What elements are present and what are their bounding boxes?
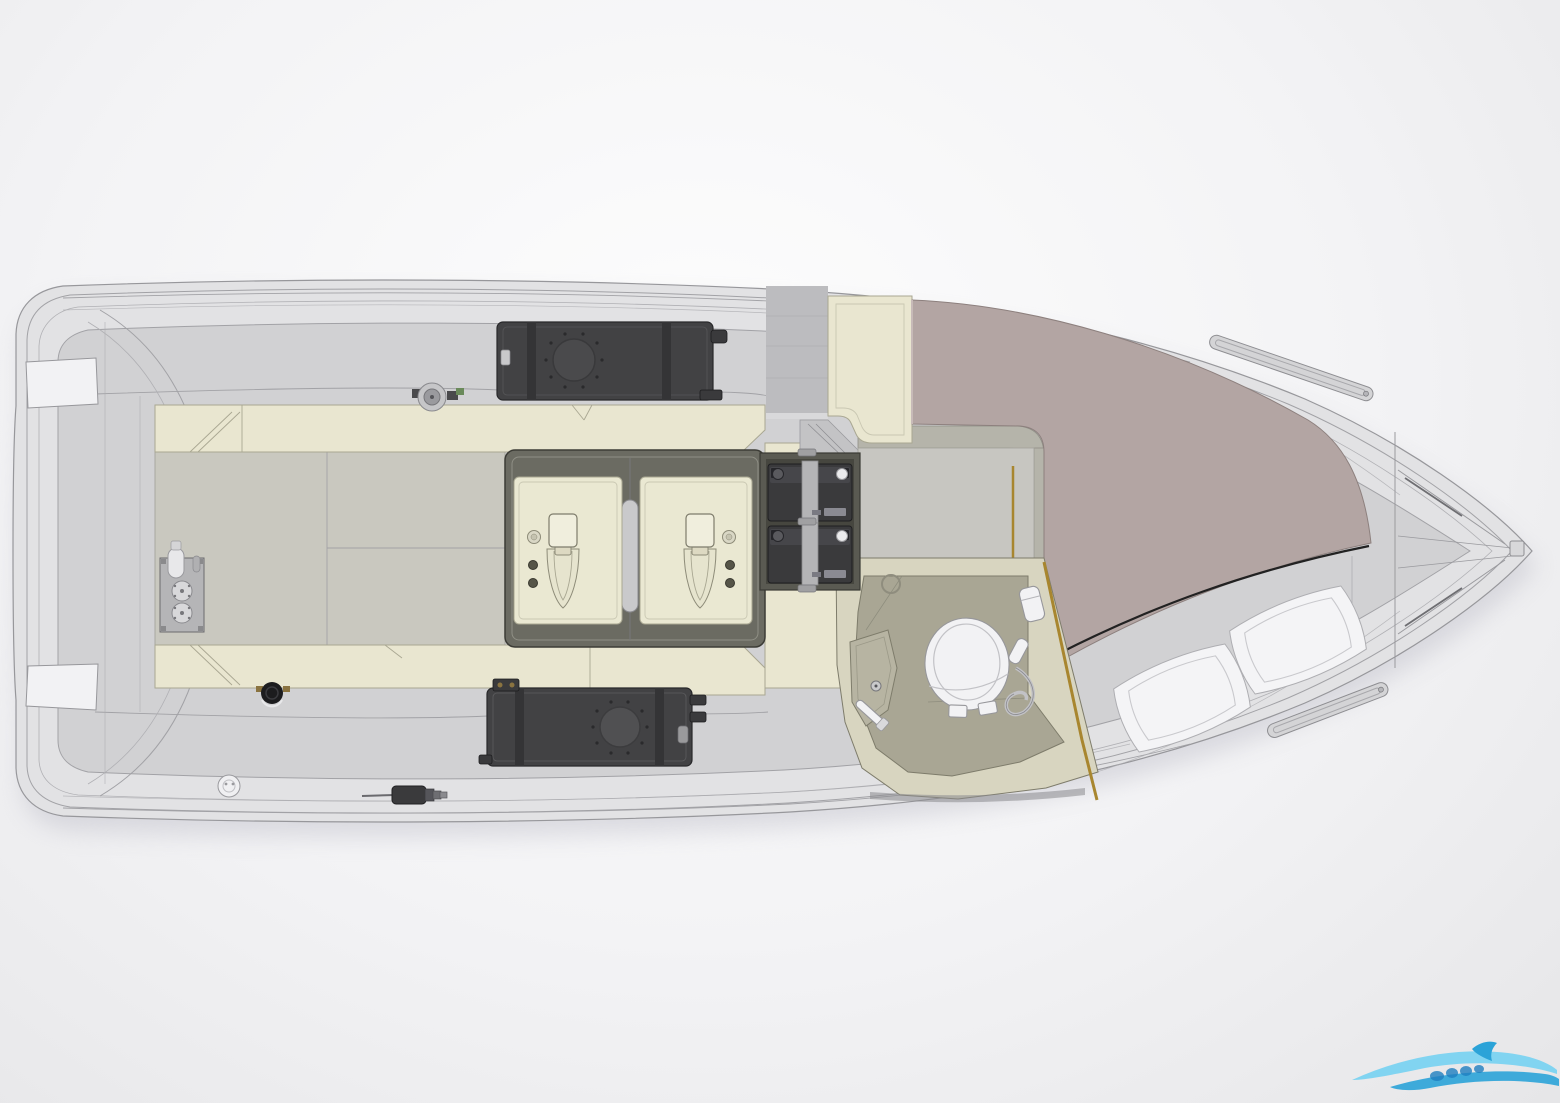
battery-label — [824, 508, 846, 516]
tank-fitting — [493, 679, 519, 691]
pump-valve-green — [456, 388, 464, 395]
inspection-port — [553, 339, 595, 381]
cabin-floor — [858, 448, 1034, 562]
bow-eye-fitting — [1510, 541, 1524, 556]
deck-drain — [218, 775, 240, 797]
battery-2 — [768, 523, 852, 585]
hatch-divider-handle — [622, 500, 638, 612]
tank-sender — [501, 350, 510, 365]
battery-compartment — [760, 449, 860, 592]
tank-fitting — [700, 390, 722, 400]
inspection-port — [600, 707, 640, 747]
cockpit-floor — [155, 452, 505, 645]
tank-starboard — [479, 679, 706, 766]
stringer-link-bottom — [765, 588, 845, 688]
accumulator-cylinder — [168, 548, 184, 578]
side-deck-shaded — [766, 286, 828, 419]
battery-label — [824, 570, 846, 578]
deck-plan-svg — [0, 0, 1560, 1103]
stern-platform-step-bottom — [26, 664, 98, 710]
stringer-top — [155, 405, 765, 452]
tank-fitting — [690, 712, 706, 722]
tank-fitting — [711, 330, 727, 343]
tank-fitting — [479, 755, 492, 764]
cabin-wall-right — [1034, 448, 1044, 562]
tank-fitting — [690, 695, 706, 705]
tank-port — [497, 322, 727, 400]
stern-platform-step-top — [26, 358, 98, 408]
wave-swoosh-deep — [1390, 1071, 1559, 1090]
engine-hatch-frame — [505, 450, 765, 647]
tank-vent — [678, 726, 688, 743]
battery-1 — [768, 461, 852, 523]
wave-logo-watermark — [1352, 1042, 1559, 1090]
boat-deck-plan — [0, 0, 1560, 1103]
cabin — [858, 426, 1044, 578]
